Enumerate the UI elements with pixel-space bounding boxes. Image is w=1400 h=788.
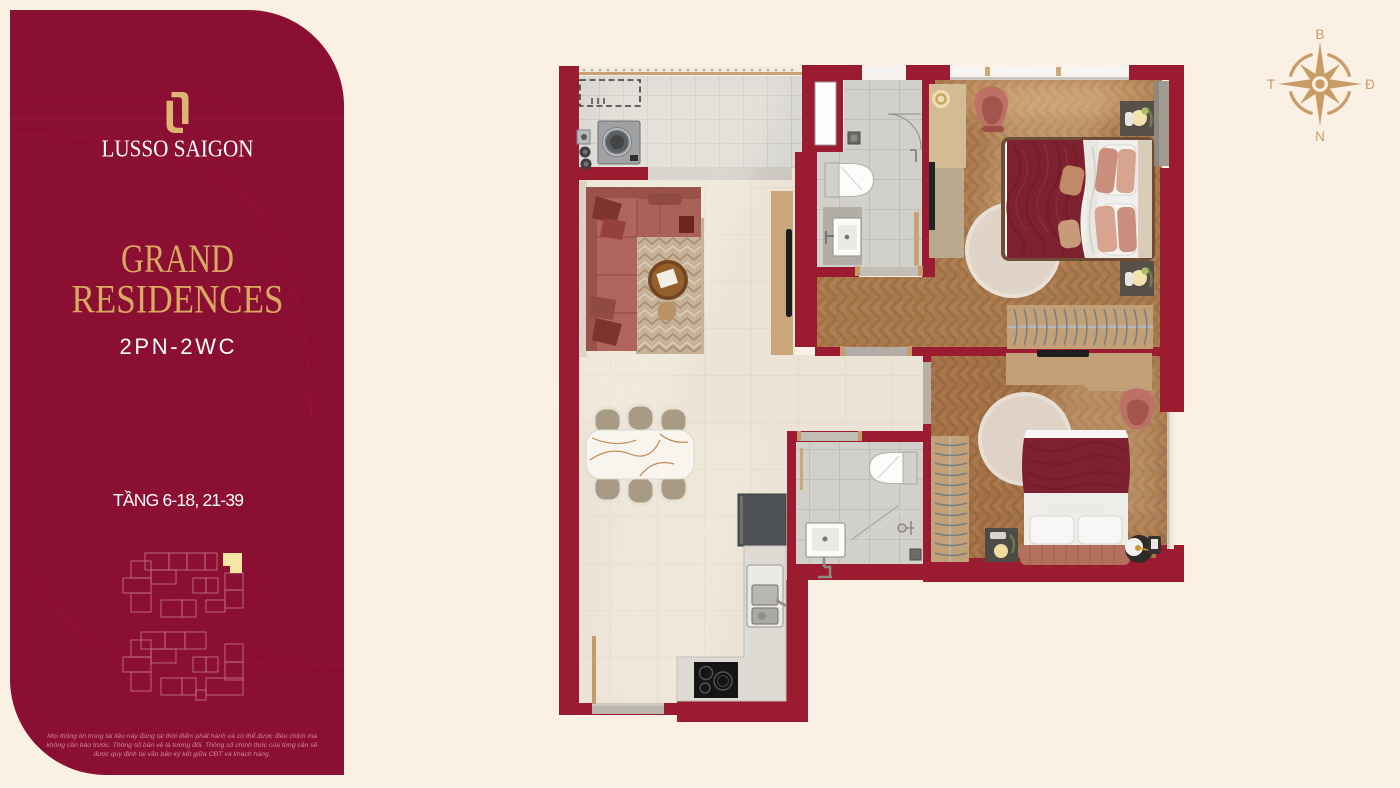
svg-text:T: T: [1267, 77, 1275, 92]
svg-text:B: B: [1315, 27, 1324, 42]
svg-text:N: N: [1315, 129, 1325, 144]
svg-text:Đ: Đ: [1365, 77, 1375, 92]
